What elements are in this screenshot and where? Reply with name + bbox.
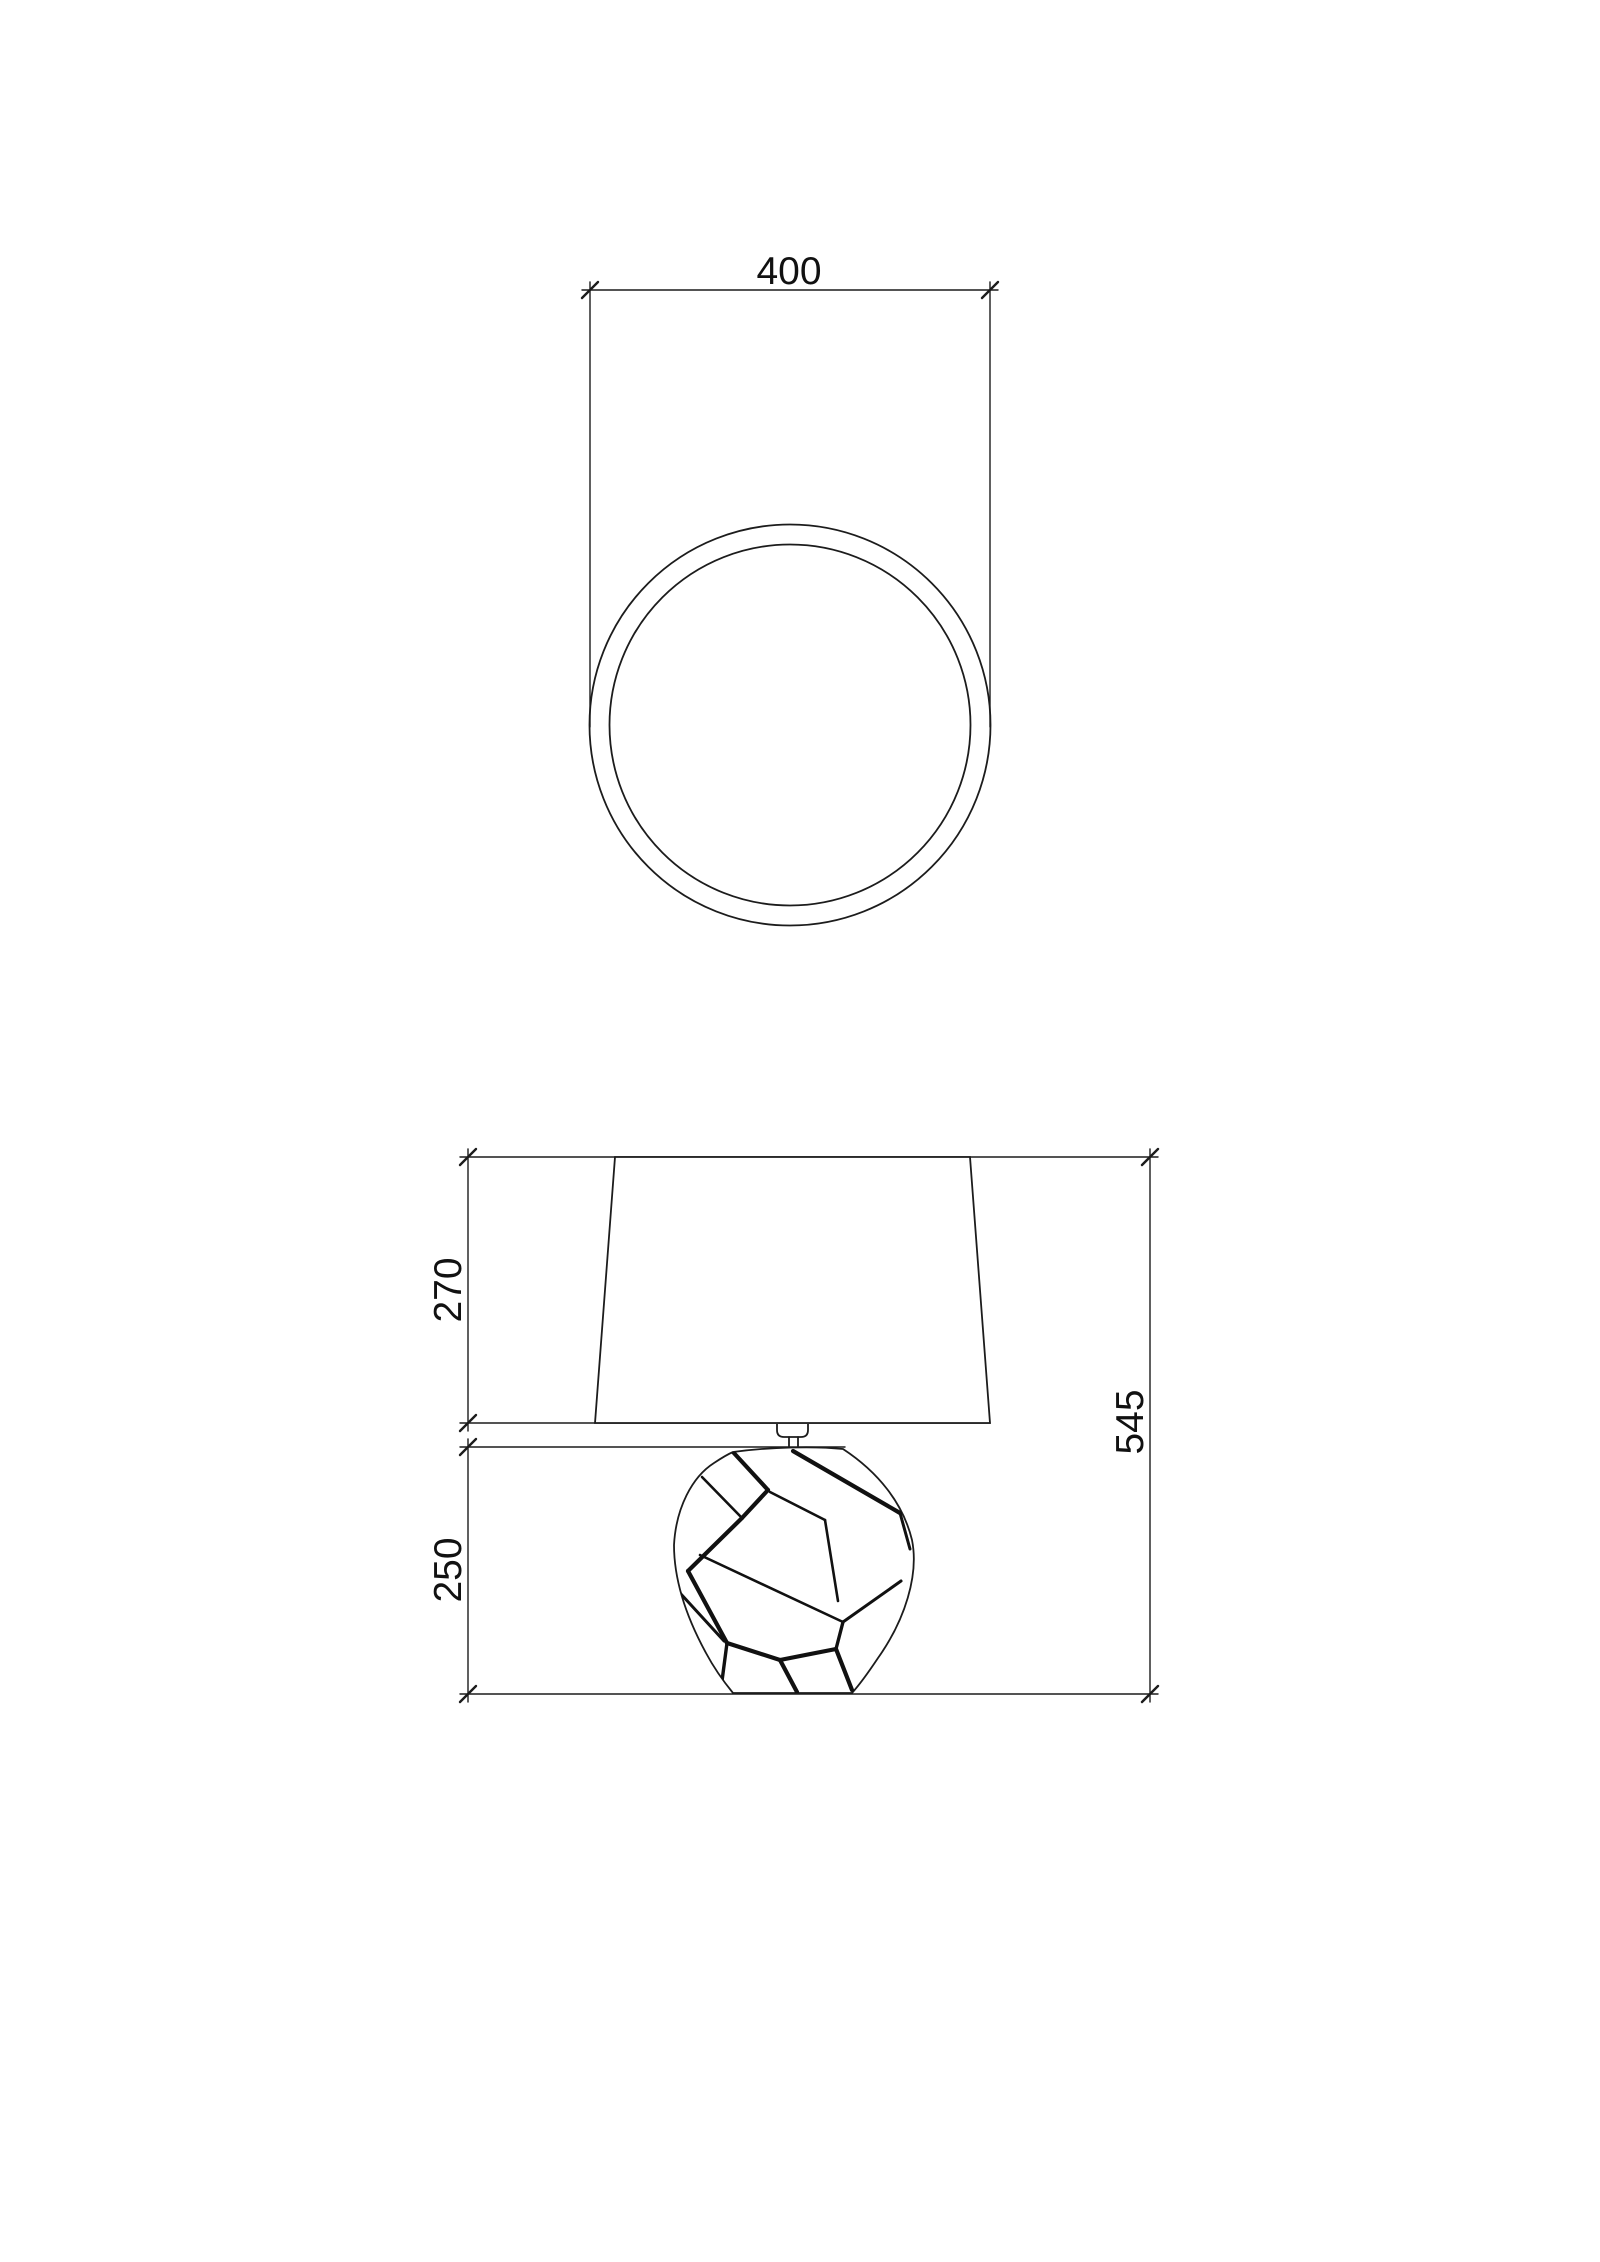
top-view: 400 [582,250,998,926]
lamp-dimension-drawing: 400 270250545 [0,0,1600,2262]
shade-inner-circle [610,545,971,906]
dimension-label-width: 400 [756,250,821,293]
drawing-sheet: 400 270250545 [0,0,1600,2262]
dimension-label-250: 250 [427,1537,470,1602]
shade-outer-circle [590,525,991,926]
front-view: 270250545 [427,1149,1158,1702]
dimension-label-545: 545 [1109,1389,1152,1454]
dimension-label-270: 270 [427,1257,470,1322]
lamp-shade-outline [595,1157,990,1423]
finial [777,1424,808,1437]
